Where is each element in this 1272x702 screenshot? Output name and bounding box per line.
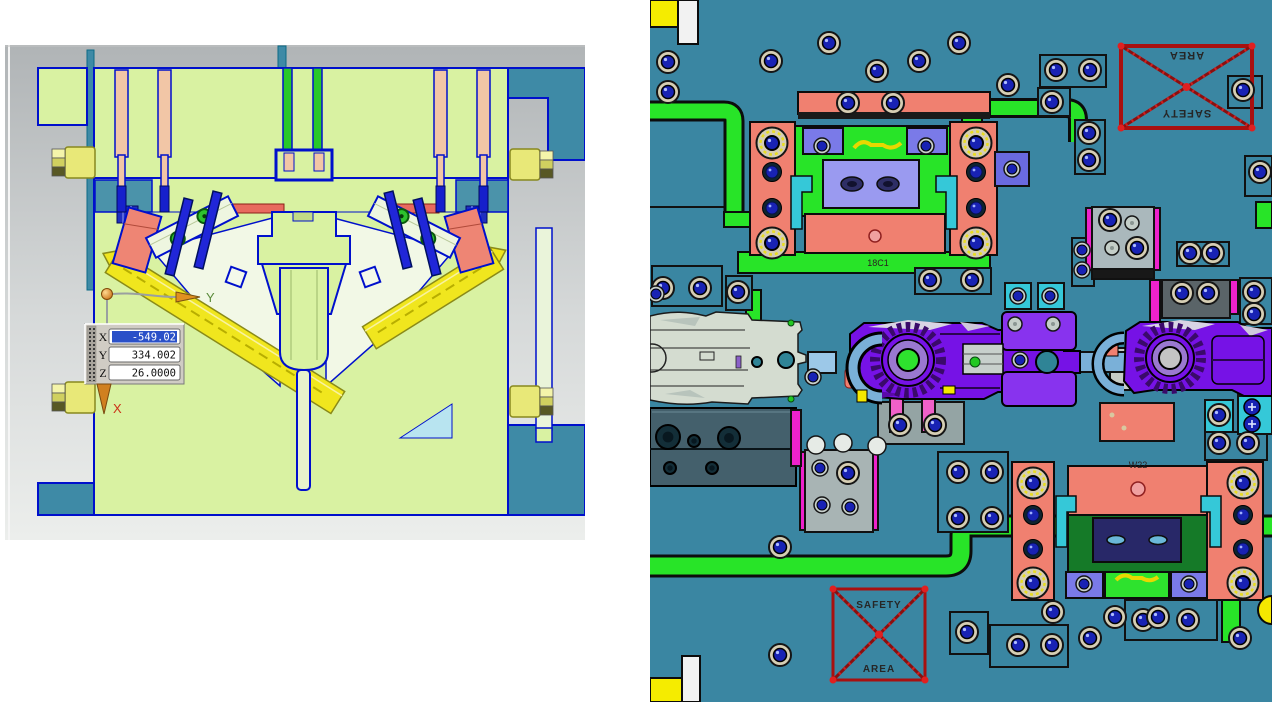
- pin-boss-icon: [868, 437, 886, 455]
- screw-icon-small: [1010, 288, 1026, 304]
- mounting-block: [791, 410, 801, 466]
- screw-icon: [981, 507, 1003, 529]
- dowel-pin-icon: [1105, 241, 1119, 255]
- safety-text: AREA: [863, 664, 895, 675]
- screw-icon: [1041, 91, 1063, 113]
- clamp-unit-bottom: W22: [1012, 460, 1263, 600]
- mounting-block: [1100, 403, 1174, 441]
- screw-icon: [961, 269, 983, 291]
- x-axis-label: X: [113, 401, 122, 416]
- screw-icon: [1041, 634, 1063, 656]
- screw-icon-small: [1074, 242, 1090, 258]
- mounting-block: [1086, 208, 1092, 270]
- screw-icon-small: [918, 138, 934, 154]
- screw-icon: [837, 462, 859, 484]
- screw-icon: [1229, 627, 1251, 649]
- screw-icon-dashed: [757, 228, 788, 259]
- y-value[interactable]: 334.002: [132, 350, 176, 362]
- screw-icon: [1237, 432, 1259, 454]
- guide-pin: [434, 70, 447, 212]
- mounting-block: [1230, 280, 1238, 314]
- screw-icon-small: [1004, 161, 1020, 177]
- screw-icon: [763, 163, 782, 182]
- screw-icon: [1208, 432, 1230, 454]
- right-viewport-plan-view[interactable]: 18C1 W22: [650, 0, 1272, 702]
- screw-icon: [882, 92, 904, 114]
- screw-icon: [967, 163, 986, 182]
- return-pin-end: [536, 428, 552, 442]
- screw-icon: [924, 414, 946, 436]
- pin-boss-icon: [807, 436, 825, 454]
- screw-icon-dashed: [757, 128, 788, 159]
- screw-icon-dashed: [1228, 568, 1259, 599]
- x-row-label: X: [99, 330, 108, 344]
- screw-icon: [1079, 59, 1101, 81]
- hole-icon: [718, 427, 740, 449]
- y-row-label: Y: [99, 348, 108, 362]
- screw-icon: [1024, 540, 1043, 559]
- safety-text: SAFETY: [1162, 107, 1211, 119]
- screw-icon: [1243, 303, 1265, 325]
- screw-icon: [1234, 540, 1253, 559]
- mounting-block: [1150, 280, 1160, 322]
- screw-icon: [908, 50, 930, 72]
- screw-icon: [1104, 606, 1126, 628]
- side-lock: [510, 386, 553, 417]
- side-lock: [510, 149, 553, 180]
- mounting-block: [1092, 269, 1154, 279]
- screw-icon: [1079, 627, 1101, 649]
- white-strip: [678, 0, 698, 44]
- screw-icon: [657, 81, 679, 103]
- screw-icon: [947, 507, 969, 529]
- ejector-pin: [297, 370, 310, 490]
- screw-icon: [837, 92, 859, 114]
- screw-icon-dashed: [1018, 568, 1049, 599]
- measure-origin-ball[interactable]: [102, 289, 113, 300]
- insert-circle-icon: [752, 357, 762, 367]
- screw-icon: [1232, 79, 1254, 101]
- screw-icon: [1197, 282, 1219, 304]
- screw-icon-small: [1181, 576, 1197, 592]
- screw-icon: [769, 536, 791, 558]
- dowel-pin-icon: [1046, 317, 1060, 331]
- plan-view-canvas: 18C1 W22: [650, 0, 1272, 702]
- screw-icon: [1078, 122, 1100, 144]
- screw-icon: [1126, 237, 1148, 259]
- white-strip: [682, 656, 700, 702]
- insert-circle-icon: [1036, 351, 1058, 373]
- screw-icon: [919, 269, 941, 291]
- screw-icon-dashed: [1228, 468, 1259, 499]
- screw-icon: [1045, 59, 1067, 81]
- dowel-pin-icon: [1125, 216, 1139, 230]
- x-value[interactable]: -549.02: [132, 332, 176, 344]
- screw-icon: [1042, 601, 1064, 623]
- screw-icon: [818, 32, 840, 54]
- guide-pin: [477, 70, 490, 212]
- screw-icon: [727, 281, 749, 303]
- screw-icon: [956, 621, 978, 643]
- screw-icon: [689, 277, 711, 299]
- screw-icon: [967, 199, 986, 218]
- screw-icon: [1024, 506, 1043, 525]
- screw-icon: [866, 60, 888, 82]
- screw-icon: [1078, 149, 1100, 171]
- screw-icon: [889, 414, 911, 436]
- screw-icon-small: [812, 460, 828, 476]
- screw-icon: [1234, 506, 1253, 525]
- y-axis-label: Y: [206, 290, 215, 305]
- z-value[interactable]: 26.0000: [132, 368, 176, 380]
- screw-icon: [1007, 634, 1029, 656]
- screw-icon-dashed: [1018, 468, 1049, 499]
- screw-icon: [947, 461, 969, 483]
- screw-icon: [1249, 161, 1271, 183]
- dot-icon: [788, 320, 794, 326]
- screw-icon-small: [650, 286, 664, 302]
- screw-icon-dashed: [961, 128, 992, 159]
- screw-icon-small: [1042, 288, 1058, 304]
- screw-icon-small: [814, 497, 830, 513]
- screw-icon: [1171, 282, 1193, 304]
- hole-icon: [656, 425, 680, 449]
- screw-icon: [1179, 242, 1201, 264]
- hole-icon: [688, 435, 700, 447]
- screw-icon: [1243, 281, 1265, 303]
- safety-text: SAFETY: [856, 600, 901, 611]
- screw-icon: [657, 51, 679, 73]
- screw-icon: [763, 199, 782, 218]
- coordinate-readout-box[interactable]: X Y Z -549.02 334.002 26.0000: [85, 324, 184, 384]
- safety-text: AREA: [1169, 49, 1204, 61]
- left-viewport-section-view[interactable]: Y X Y Z -549.02 334.002 26.0000 X: [5, 45, 585, 540]
- screw-icon-small: [1012, 352, 1028, 368]
- cross-screw-icon: [1244, 399, 1260, 415]
- section-view-canvas: Y X Y Z -549.02 334.002 26.0000 X: [5, 45, 585, 540]
- cad-application-window: Y X Y Z -549.02 334.002 26.0000 X: [0, 0, 1272, 702]
- bottom-left-clamp-block: [38, 483, 94, 515]
- pin-boss-icon: [834, 434, 852, 452]
- screw-icon-small: [842, 499, 858, 515]
- screw-icon: [1208, 404, 1230, 426]
- guide-pin: [158, 70, 171, 212]
- side-lock: [52, 382, 95, 413]
- screw-icon: [1099, 209, 1121, 231]
- dot-icon: [970, 357, 980, 367]
- screw-icon: [769, 644, 791, 666]
- cross-screw-icon: [1244, 416, 1260, 432]
- clamp-top-label: 18C1: [867, 258, 889, 268]
- mounting-block: [1154, 208, 1160, 270]
- z-row-label: Z: [99, 366, 106, 380]
- dot-icon: [788, 396, 794, 402]
- side-lock: [52, 147, 95, 178]
- clamp-bottom-label: W22: [1129, 460, 1148, 470]
- screw-icon-dashed: [961, 228, 992, 259]
- screw-icon-small: [1076, 576, 1092, 592]
- dowel-pin-icon: [1008, 317, 1022, 331]
- latch-gear-icon: [875, 327, 941, 393]
- screw-icon: [1177, 609, 1199, 631]
- screw-icon: [760, 50, 782, 72]
- screw-icon-small: [1074, 262, 1090, 278]
- screw-icon-small: [814, 138, 830, 154]
- hole-icon: [664, 462, 676, 474]
- screw-icon: [997, 74, 1019, 96]
- screw-icon: [1202, 242, 1224, 264]
- yellow-tab-icon: [650, 0, 678, 27]
- screw-icon: [981, 461, 1003, 483]
- screw-icon: [1147, 606, 1169, 628]
- guide-pin: [115, 70, 128, 212]
- hole-icon: [706, 462, 718, 474]
- yellow-tab-icon: [650, 678, 682, 702]
- insert-circle-icon: [778, 352, 794, 368]
- screw-icon-small: [805, 369, 821, 385]
- mounting-block: [873, 452, 878, 530]
- screw-icon: [948, 32, 970, 54]
